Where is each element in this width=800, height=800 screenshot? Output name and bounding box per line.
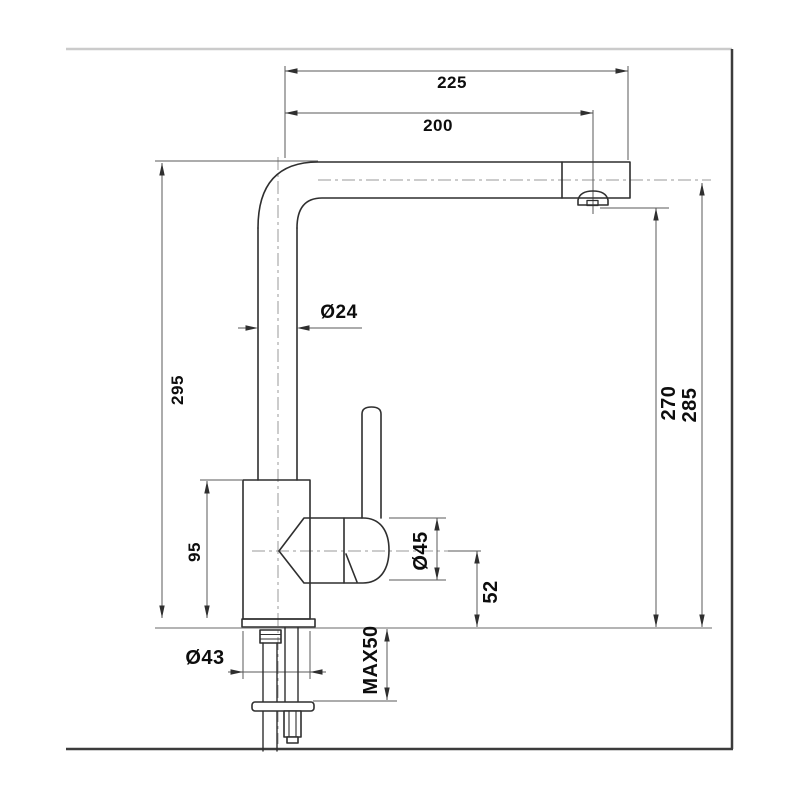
centerlines <box>252 157 711 744</box>
drawing-canvas: 225 200 Ø24 295 95 Ø45 52 270 285 Ø43 MA… <box>0 0 800 800</box>
frame <box>66 49 733 749</box>
dim-label-max50: MAX50 <box>361 605 381 715</box>
dim-label-95: 95 <box>186 522 204 582</box>
supply-pipe <box>263 643 277 751</box>
dim-label-dia24: Ø24 <box>304 303 374 323</box>
threaded-stud <box>285 628 298 702</box>
dim-label-52: 52 <box>481 562 501 622</box>
dim-label-dia43: Ø43 <box>170 648 240 668</box>
faucet-outline <box>242 162 630 751</box>
faucet-body <box>243 480 310 619</box>
dim-label-295: 295 <box>169 350 187 430</box>
dim-label-270: 270 <box>659 363 679 443</box>
mounting-washer <box>252 702 314 711</box>
handle-lever <box>362 407 381 518</box>
dim-label-225: 225 <box>422 74 482 92</box>
stud-tip <box>287 737 298 743</box>
dim-label-dia45: Ø45 <box>411 511 431 591</box>
cartridge-seam <box>346 554 357 582</box>
spout <box>258 162 630 228</box>
dim-label-285: 285 <box>680 365 700 445</box>
arrowheads <box>159 68 704 700</box>
mounting-nut <box>284 711 301 737</box>
dim-label-200: 200 <box>408 117 468 135</box>
